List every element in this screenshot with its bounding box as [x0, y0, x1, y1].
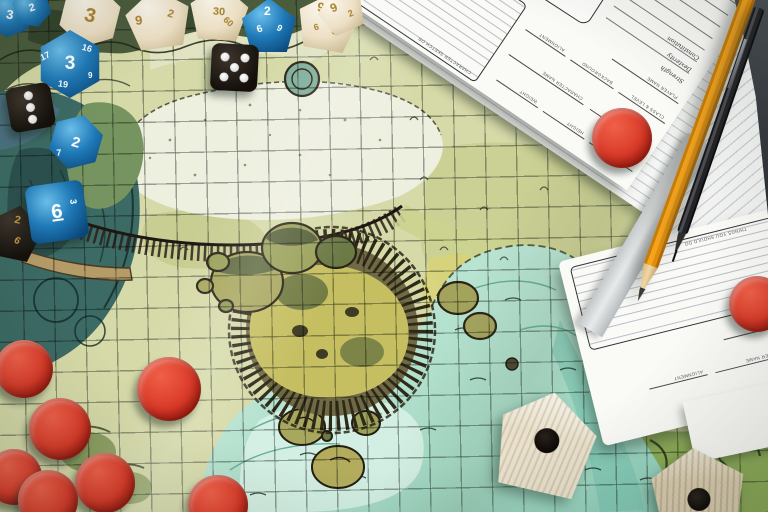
red-token	[137, 357, 201, 421]
field-weight: WEIGHT	[496, 80, 538, 109]
black-d6-three	[4, 81, 56, 133]
field-background: BACKGROUND	[570, 59, 614, 89]
field-alignment: ALIGNMENT	[525, 29, 565, 57]
blue-d6-six: 6 3	[24, 179, 90, 245]
field-player-name-2: PLAYER NAME	[715, 355, 768, 373]
black-d6-five	[210, 43, 259, 92]
tabletop-photo: FACTION HEIGHT WEIGHT RACE CHARACTER NAM…	[0, 0, 768, 512]
wooden-house-token	[650, 446, 746, 512]
red-token-on-sheet	[592, 108, 652, 168]
pen-needle-tip	[671, 250, 677, 262]
pencil-graphite-tip	[635, 287, 645, 302]
field-height: HEIGHT	[543, 111, 585, 140]
red-token	[75, 453, 135, 512]
red-token	[29, 398, 91, 460]
field-alignment-2: ALIGNMENT	[649, 374, 707, 389]
